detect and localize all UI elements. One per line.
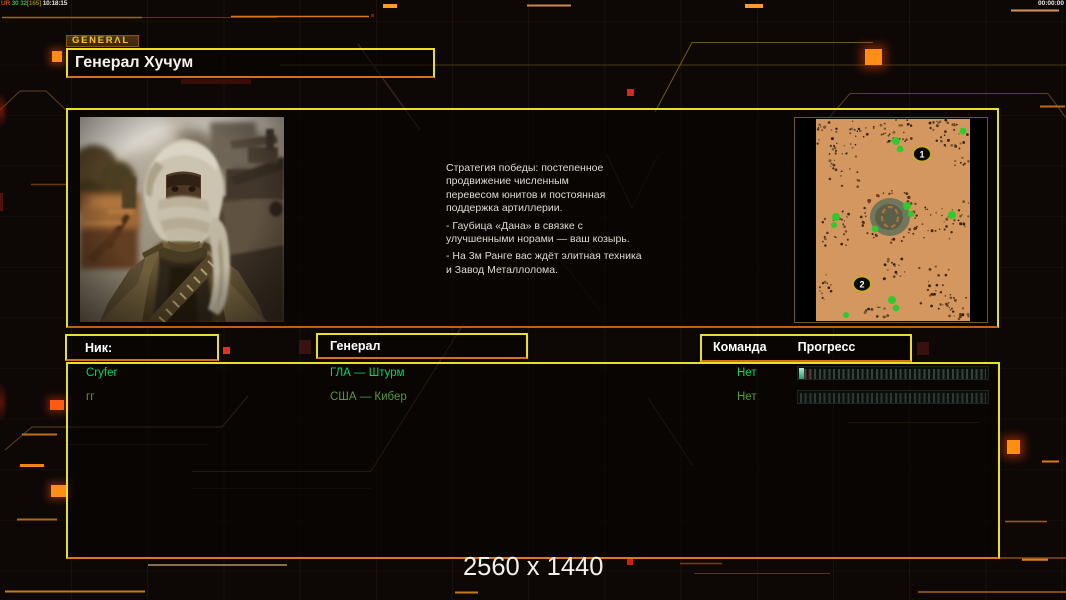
svg-text:2: 2 — [859, 280, 864, 290]
svg-text:1: 1 — [919, 150, 924, 160]
